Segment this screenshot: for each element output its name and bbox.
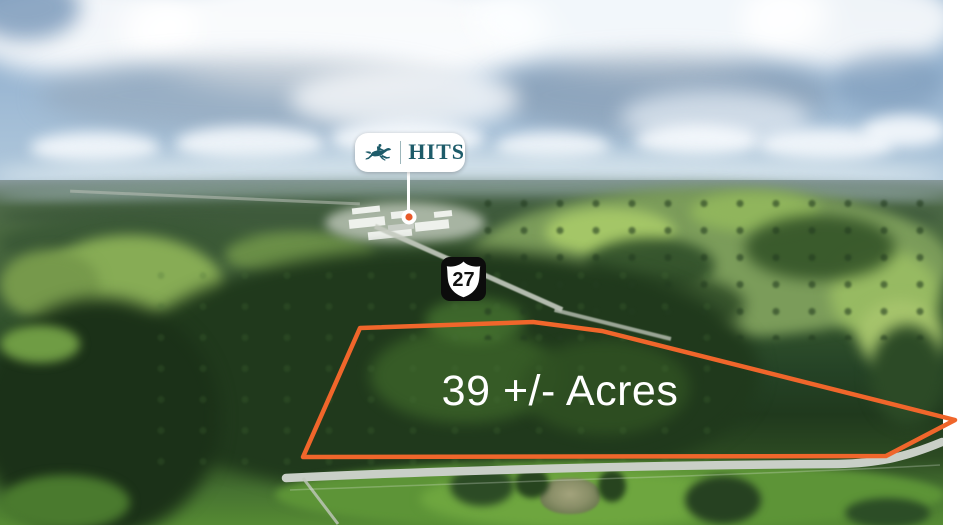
hits-location-pin: HITS — [355, 133, 465, 172]
pin-stem — [407, 171, 410, 213]
us-route-27-shield: 27 — [441, 257, 486, 301]
horse-jumping-icon — [363, 140, 395, 166]
pin-dot-center — [405, 213, 412, 220]
route-shield-icon: 27 — [441, 257, 486, 301]
hits-brand-text: HITS — [408, 141, 465, 164]
parcel-acreage-label: 39 +/- Acres — [365, 368, 755, 415]
pin-dot — [401, 209, 417, 225]
route-number: 27 — [452, 269, 474, 291]
aerial-listing-image: 39 +/- Acres HITS 27 — [0, 0, 960, 528]
badge-divider — [400, 141, 402, 164]
